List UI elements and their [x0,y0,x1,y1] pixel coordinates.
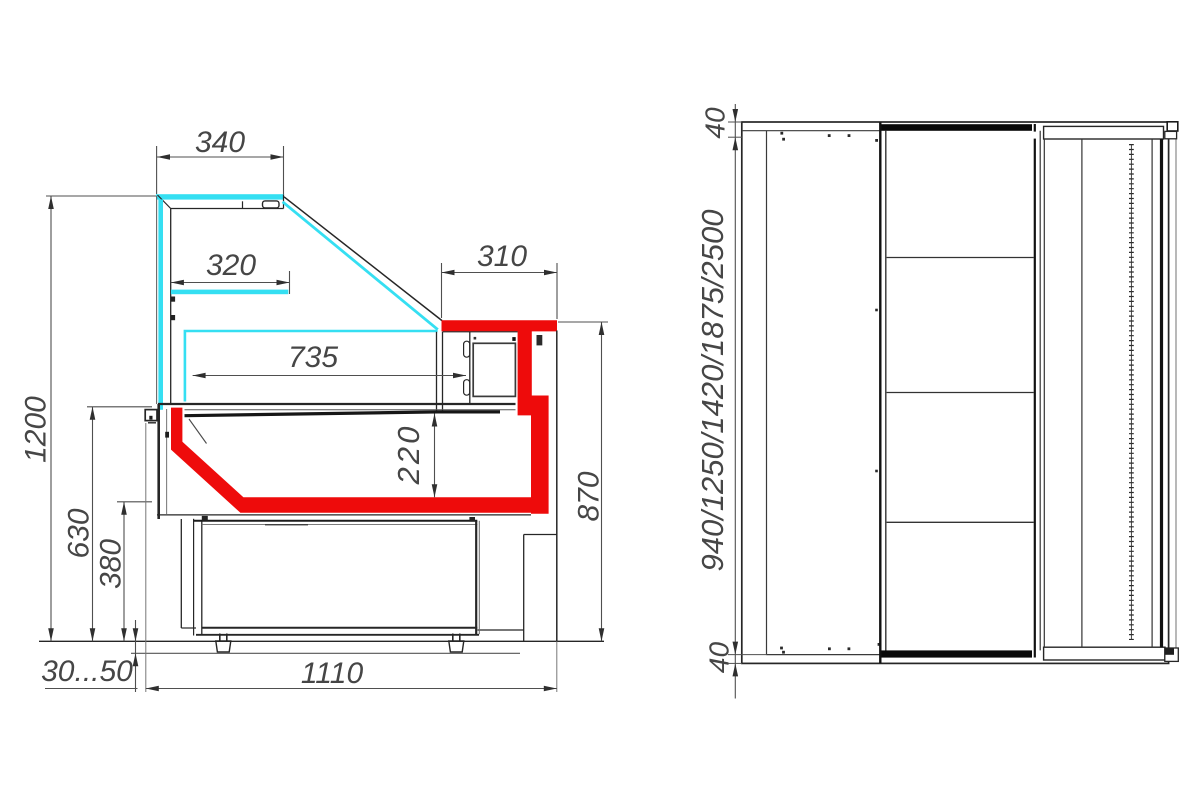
svg-text:310: 310 [477,240,527,273]
svg-text:30...50: 30...50 [41,655,133,688]
svg-text:340: 340 [195,126,245,159]
svg-text:1200: 1200 [20,396,53,463]
svg-text:220: 220 [391,424,426,486]
svg-text:40: 40 [704,642,735,674]
svg-text:630: 630 [63,508,96,558]
svg-text:870: 870 [573,471,606,521]
svg-text:320: 320 [206,249,256,282]
svg-text:380: 380 [95,539,128,589]
svg-text:940/1250/1420/1875/2500: 940/1250/1420/1875/2500 [695,209,730,571]
svg-text:1110: 1110 [301,657,364,690]
svg-text:735: 735 [288,341,338,374]
svg-text:40: 40 [700,107,731,139]
